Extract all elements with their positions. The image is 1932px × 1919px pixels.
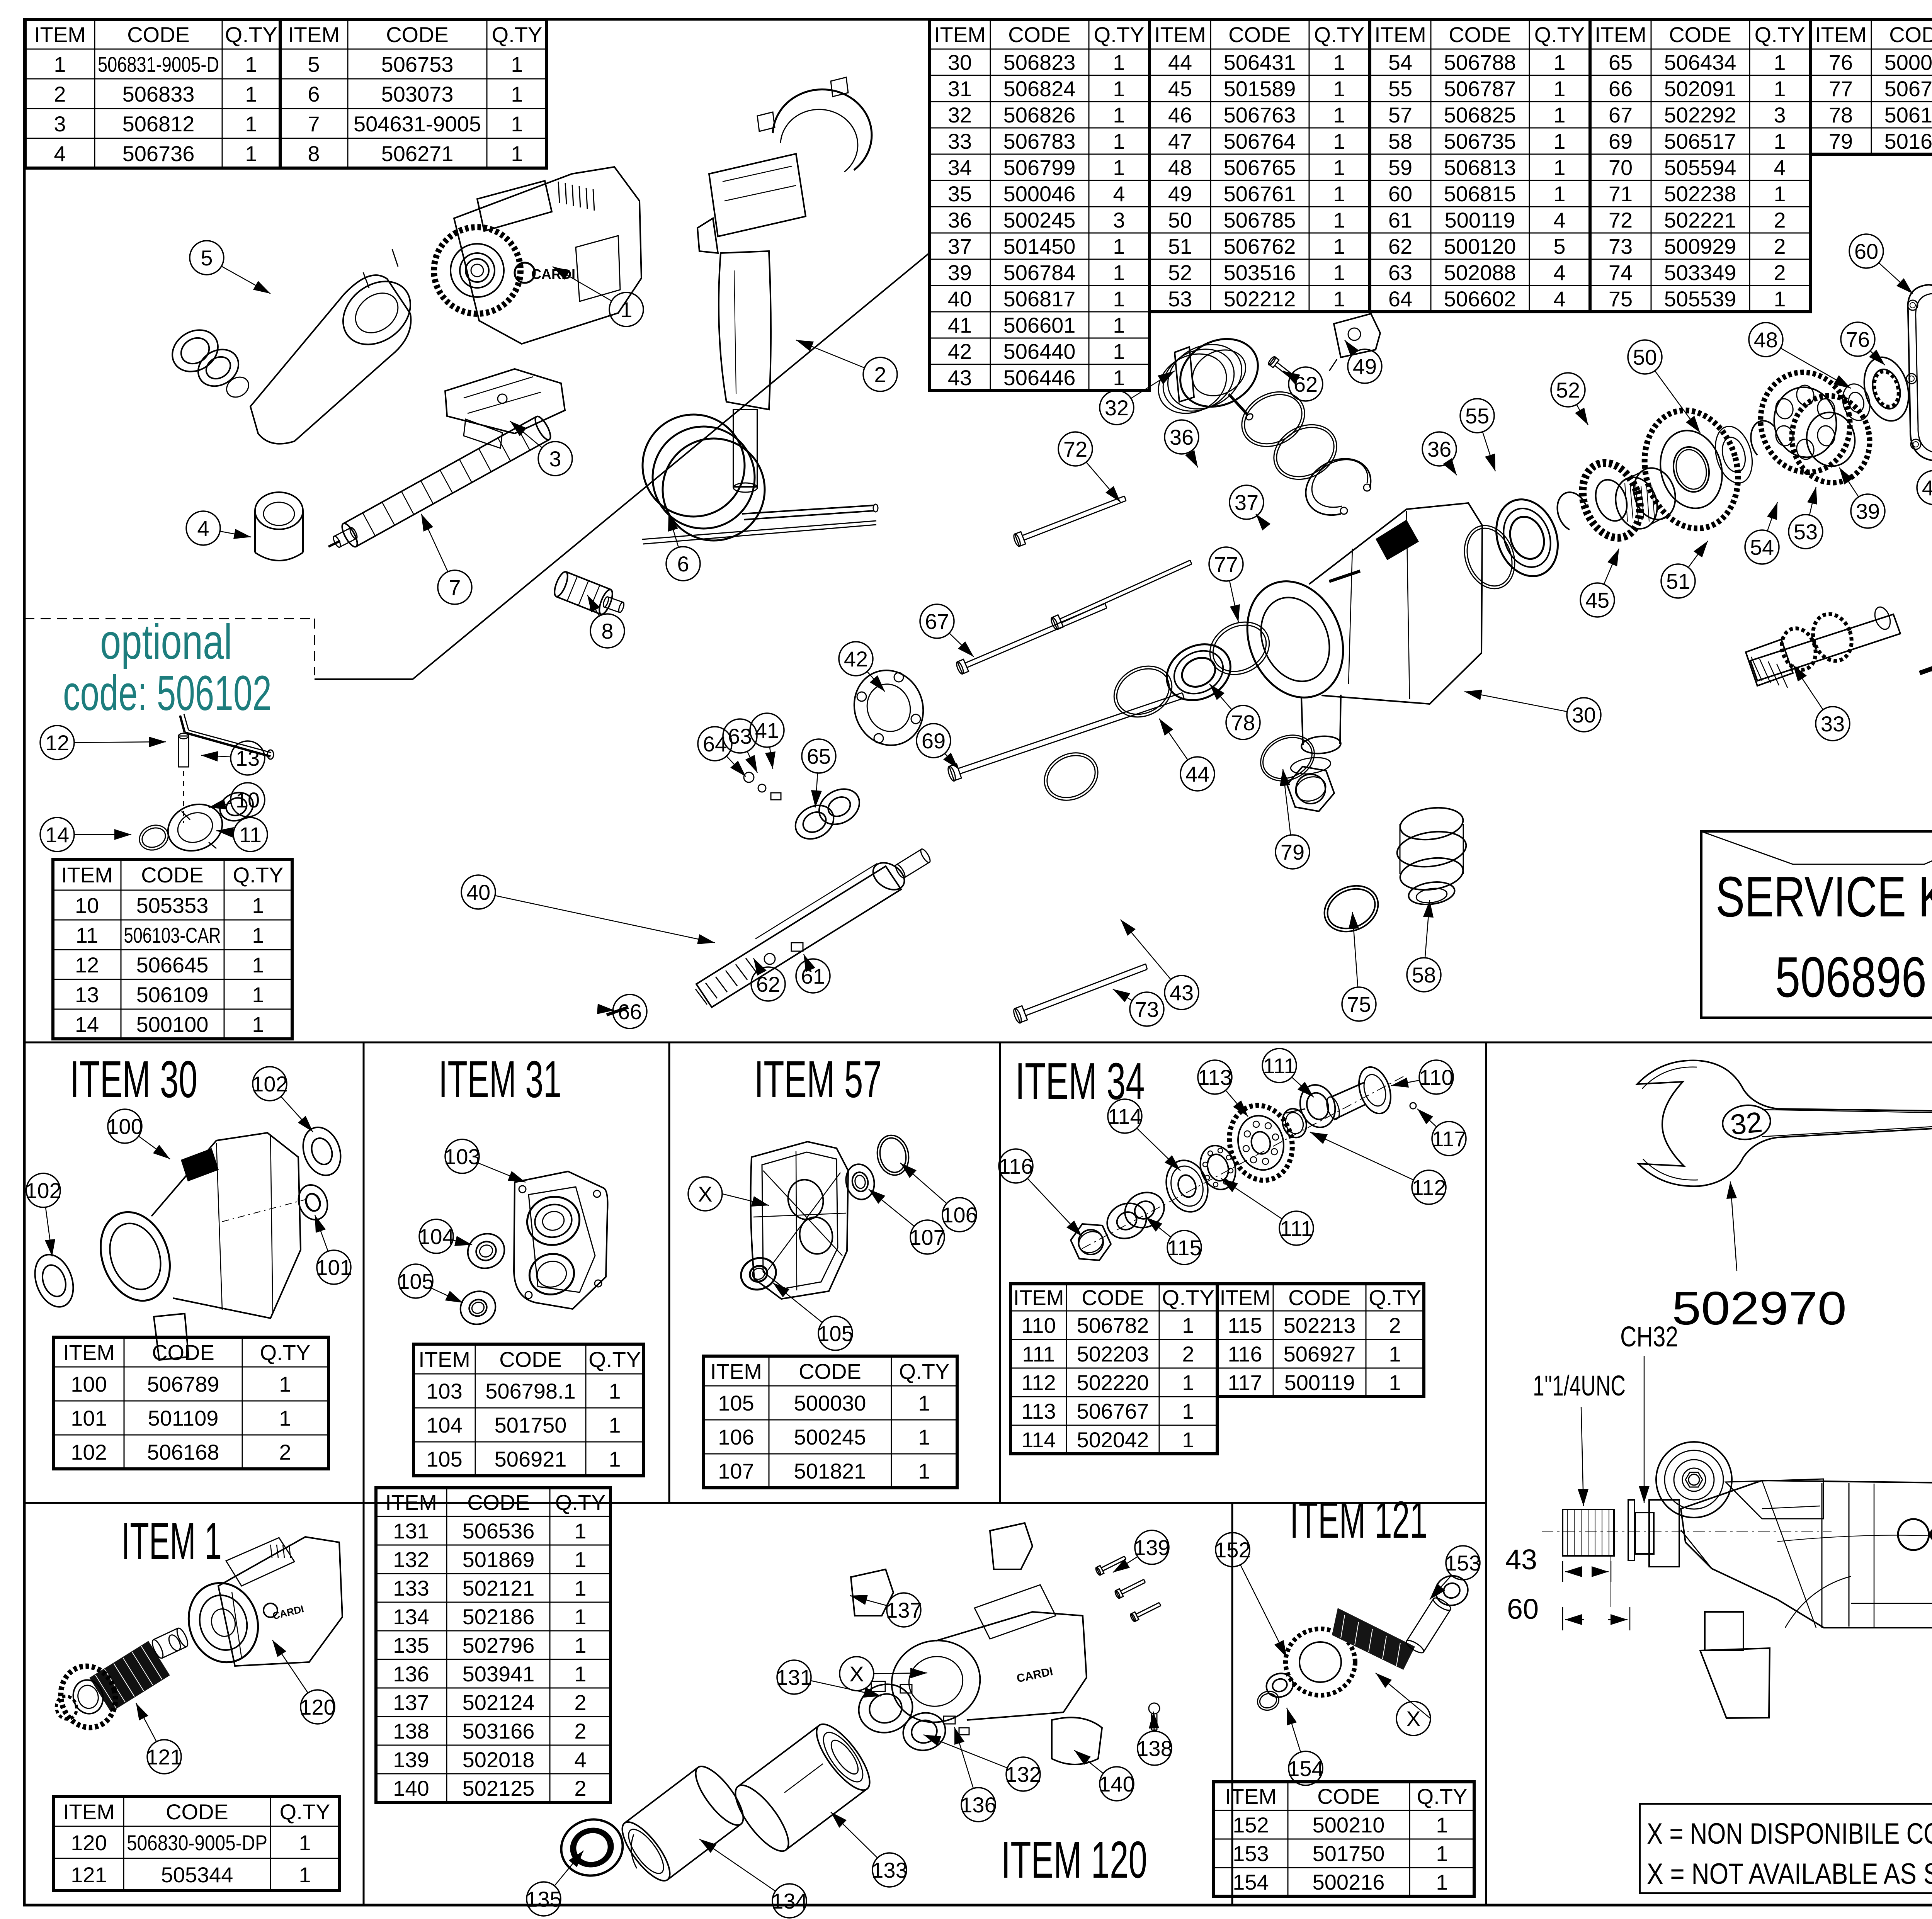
svg-text:CODE: CODE (1228, 22, 1291, 47)
svg-text:502125: 502125 (463, 1776, 535, 1800)
svg-text:2: 2 (574, 1776, 586, 1800)
svg-text:ITEM 1: ITEM 1 (121, 1512, 222, 1570)
svg-text:43: 43 (1170, 981, 1194, 1005)
svg-text:optional: optional (100, 614, 232, 670)
svg-text:116: 116 (1228, 1342, 1262, 1366)
svg-text:11: 11 (76, 923, 98, 947)
svg-text:34: 34 (948, 155, 972, 180)
svg-text:506764: 506764 (1224, 129, 1296, 153)
svg-text:1: 1 (1774, 287, 1786, 311)
svg-text:506736: 506736 (122, 141, 195, 166)
svg-text:1: 1 (1389, 1370, 1401, 1395)
svg-text:1: 1 (1113, 313, 1125, 337)
svg-text:62: 62 (756, 972, 780, 996)
svg-text:CODE: CODE (499, 1347, 562, 1372)
svg-text:1: 1 (1113, 103, 1125, 127)
svg-text:1: 1 (1333, 103, 1345, 127)
svg-text:102: 102 (252, 1072, 287, 1096)
svg-text:10: 10 (75, 893, 99, 918)
svg-text:41: 41 (948, 313, 972, 337)
svg-text:73: 73 (1135, 997, 1159, 1022)
svg-text:1: 1 (1333, 182, 1345, 206)
svg-text:133: 133 (871, 1858, 907, 1882)
svg-text:40: 40 (466, 880, 490, 904)
svg-text:65: 65 (1609, 50, 1633, 75)
svg-text:500100: 500100 (136, 1012, 209, 1037)
svg-text:1: 1 (54, 52, 66, 76)
svg-text:506103-CAR: 506103-CAR (124, 923, 221, 947)
svg-text:69: 69 (1609, 129, 1633, 153)
svg-text:13: 13 (75, 982, 99, 1007)
svg-text:CODE: CODE (1288, 1285, 1351, 1310)
svg-text:1: 1 (574, 1633, 586, 1657)
svg-text:1: 1 (1333, 50, 1345, 75)
svg-text:154: 154 (1287, 1756, 1323, 1781)
svg-text:506782: 506782 (1077, 1313, 1149, 1338)
svg-text:4: 4 (54, 141, 66, 166)
svg-text:43: 43 (1505, 1543, 1537, 1576)
svg-text:1: 1 (1113, 287, 1125, 311)
svg-text:2: 2 (279, 1440, 291, 1464)
svg-text:114: 114 (1021, 1428, 1056, 1452)
svg-text:CODE: CODE (141, 863, 204, 887)
svg-text:501750: 501750 (1313, 1841, 1385, 1866)
svg-text:131: 131 (776, 1665, 812, 1690)
svg-text:502796: 502796 (463, 1633, 535, 1657)
svg-text:503073: 503073 (381, 82, 454, 106)
svg-text:1: 1 (252, 923, 264, 947)
svg-text:500245: 500245 (794, 1425, 866, 1449)
svg-text:502088: 502088 (1444, 260, 1516, 285)
svg-text:121: 121 (71, 1863, 107, 1887)
svg-text:506896: 506896 (1775, 945, 1927, 1009)
svg-text:33: 33 (1821, 712, 1845, 736)
svg-text:58: 58 (1388, 129, 1412, 153)
svg-text:506788: 506788 (1444, 50, 1516, 75)
svg-text:1: 1 (1436, 1813, 1448, 1837)
svg-text:101: 101 (316, 1255, 352, 1280)
svg-text:76: 76 (1846, 327, 1870, 352)
svg-text:117: 117 (1228, 1370, 1262, 1395)
svg-text:CODE: CODE (1889, 22, 1932, 47)
svg-text:36: 36 (948, 208, 972, 232)
svg-text:37: 37 (1235, 490, 1259, 515)
svg-text:500046: 500046 (1003, 182, 1076, 206)
svg-text:104: 104 (426, 1413, 462, 1437)
svg-text:60: 60 (1507, 1593, 1539, 1625)
svg-text:60: 60 (1854, 239, 1878, 263)
svg-text:506536: 506536 (463, 1519, 535, 1543)
svg-text:X = NON DISPONIBILE COME RICAM: X = NON DISPONIBILE COME RICAMBIO (1647, 1817, 1932, 1850)
svg-text:ITEM: ITEM (63, 1340, 115, 1365)
svg-text:106: 106 (941, 1203, 977, 1227)
svg-text:1: 1 (1774, 129, 1786, 153)
svg-text:120: 120 (71, 1831, 107, 1855)
svg-text:ITEM 31: ITEM 31 (439, 1050, 561, 1108)
svg-text:506927: 506927 (1284, 1342, 1356, 1366)
svg-text:ITEM: ITEM (61, 863, 113, 887)
svg-text:76: 76 (1829, 50, 1853, 75)
svg-text:10: 10 (236, 788, 260, 812)
svg-text:100: 100 (107, 1114, 143, 1139)
svg-text:ITEM: ITEM (288, 22, 340, 47)
svg-text:52: 52 (1168, 260, 1192, 285)
svg-text:112: 112 (1021, 1370, 1056, 1395)
svg-text:500245: 500245 (1003, 208, 1076, 232)
svg-text:1: 1 (1113, 339, 1125, 364)
svg-text:500119: 500119 (1445, 208, 1515, 232)
svg-text:103: 103 (444, 1144, 480, 1169)
svg-text:ITEM: ITEM (934, 22, 986, 47)
svg-text:ITEM 30: ITEM 30 (70, 1050, 197, 1108)
svg-text:ITEM: ITEM (385, 1490, 437, 1514)
svg-text:103: 103 (426, 1379, 462, 1403)
svg-text:113: 113 (1197, 1065, 1232, 1090)
svg-text:506601: 506601 (1003, 313, 1076, 337)
svg-text:500120: 500120 (1444, 234, 1516, 258)
svg-text:1: 1 (1553, 50, 1565, 75)
svg-text:ITEM: ITEM (1595, 22, 1646, 47)
svg-text:ITEM: ITEM (1014, 1285, 1064, 1310)
svg-text:6: 6 (308, 82, 320, 106)
svg-text:78: 78 (1829, 103, 1853, 127)
svg-text:506645: 506645 (136, 953, 209, 977)
svg-text:5: 5 (201, 246, 213, 270)
svg-text:1: 1 (1333, 208, 1345, 232)
svg-text:506815: 506815 (1444, 182, 1516, 206)
svg-text:75: 75 (1609, 287, 1633, 311)
svg-text:50: 50 (1633, 345, 1657, 369)
svg-text:X: X (849, 1662, 864, 1686)
svg-text:1: 1 (245, 141, 257, 166)
svg-text:1: 1 (1774, 182, 1786, 206)
svg-text:506767: 506767 (1077, 1399, 1149, 1423)
svg-text:112: 112 (1412, 1175, 1446, 1200)
svg-text:30: 30 (1572, 703, 1596, 727)
svg-text:506813: 506813 (1444, 155, 1516, 180)
svg-text:1: 1 (1113, 365, 1125, 390)
svg-text:1: 1 (1389, 1342, 1401, 1366)
svg-text:1: 1 (574, 1662, 586, 1686)
svg-text:1: 1 (511, 112, 523, 136)
svg-text:502238: 502238 (1664, 182, 1736, 206)
svg-text:134: 134 (771, 1889, 807, 1913)
svg-text:1: 1 (1553, 155, 1565, 180)
svg-text:500119: 500119 (1284, 1370, 1355, 1395)
svg-text:1: 1 (918, 1391, 930, 1415)
svg-text:54: 54 (1750, 535, 1774, 559)
svg-text:506168: 506168 (147, 1440, 219, 1464)
svg-text:5: 5 (1553, 234, 1565, 258)
svg-text:1: 1 (299, 1863, 311, 1887)
svg-text:1: 1 (1113, 76, 1125, 101)
svg-text:X: X (698, 1182, 712, 1206)
svg-text:105: 105 (817, 1321, 853, 1346)
svg-text:136: 136 (960, 1793, 996, 1817)
svg-text:102: 102 (71, 1440, 107, 1464)
svg-text:43: 43 (948, 365, 972, 390)
svg-text:CODE: CODE (127, 22, 190, 47)
svg-text:506752: 506752 (1884, 76, 1932, 101)
svg-text:502018: 502018 (463, 1747, 535, 1772)
svg-text:59: 59 (1388, 155, 1412, 180)
svg-text:2: 2 (574, 1690, 586, 1715)
svg-text:506787: 506787 (1444, 76, 1516, 101)
svg-text:32: 32 (1105, 396, 1129, 420)
svg-text:4: 4 (1113, 182, 1125, 206)
svg-text:ITEM: ITEM (1220, 1285, 1270, 1310)
svg-text:506763: 506763 (1224, 103, 1296, 127)
svg-text:1: 1 (245, 112, 257, 136)
svg-text:111: 111 (1022, 1342, 1055, 1366)
svg-text:115: 115 (1167, 1236, 1201, 1260)
svg-text:2: 2 (1774, 208, 1786, 232)
svg-text:ITEM 120: ITEM 120 (1001, 1831, 1147, 1889)
svg-text:4: 4 (1774, 155, 1786, 180)
svg-text:71: 71 (1609, 182, 1633, 206)
svg-text:8: 8 (308, 141, 320, 166)
svg-text:1: 1 (918, 1425, 930, 1449)
svg-text:501609: 501609 (1884, 129, 1932, 153)
svg-text:1: 1 (1113, 155, 1125, 180)
svg-text:37: 37 (948, 234, 972, 258)
svg-text:66: 66 (618, 999, 642, 1024)
svg-text:67: 67 (925, 609, 949, 634)
svg-text:506799: 506799 (1003, 155, 1076, 180)
svg-text:ITEM: ITEM (1154, 22, 1206, 47)
svg-text:506921: 506921 (495, 1447, 567, 1471)
svg-text:502042: 502042 (1077, 1428, 1149, 1452)
svg-text:70: 70 (1609, 155, 1633, 180)
svg-text:Q.TY: Q.TY (1314, 22, 1365, 47)
svg-text:1: 1 (918, 1459, 930, 1483)
svg-text:503941: 503941 (463, 1662, 535, 1686)
svg-text:506440: 506440 (1003, 339, 1076, 364)
svg-text:506762: 506762 (1224, 234, 1296, 258)
svg-text:52: 52 (1556, 378, 1580, 402)
svg-text:1: 1 (574, 1605, 586, 1629)
svg-text:64: 64 (1388, 287, 1412, 311)
svg-text:X: X (1406, 1707, 1420, 1731)
svg-text:117: 117 (1432, 1127, 1466, 1151)
svg-text:50: 50 (1168, 208, 1192, 232)
svg-text:111: 111 (1280, 1216, 1313, 1241)
svg-text:49: 49 (1353, 354, 1377, 379)
svg-text:ITEM: ITEM (1374, 22, 1426, 47)
svg-text:1: 1 (1553, 182, 1565, 206)
svg-text:1: 1 (1774, 50, 1786, 75)
svg-text:47: 47 (1922, 476, 1932, 500)
svg-text:153: 153 (1233, 1841, 1269, 1866)
svg-text:63: 63 (1388, 260, 1412, 285)
svg-text:502970: 502970 (1672, 1282, 1847, 1334)
svg-text:506166: 506166 (1884, 103, 1932, 127)
svg-text:1: 1 (1333, 260, 1345, 285)
svg-text:503166: 503166 (463, 1719, 535, 1743)
svg-text:79: 79 (1829, 129, 1853, 153)
svg-text:501109: 501109 (148, 1406, 219, 1430)
svg-text:500929: 500929 (1664, 234, 1736, 258)
svg-text:74: 74 (1609, 260, 1633, 285)
svg-text:Q.TY: Q.TY (588, 1347, 641, 1372)
svg-text:61: 61 (801, 964, 825, 988)
svg-text:506753: 506753 (381, 52, 454, 76)
svg-text:ITEM: ITEM (34, 22, 86, 47)
svg-text:1: 1 (279, 1372, 291, 1396)
svg-text:4: 4 (197, 516, 209, 541)
svg-text:4: 4 (1553, 260, 1565, 285)
svg-text:1: 1 (1553, 129, 1565, 153)
svg-text:152: 152 (1214, 1538, 1250, 1562)
svg-text:49: 49 (1168, 182, 1192, 206)
svg-text:104: 104 (418, 1224, 454, 1249)
svg-text:65: 65 (807, 744, 831, 768)
svg-text:1: 1 (574, 1519, 586, 1543)
svg-text:54: 54 (1388, 50, 1412, 75)
svg-text:502212: 502212 (1224, 287, 1296, 311)
svg-text:1: 1 (609, 1379, 621, 1403)
svg-text:506431: 506431 (1224, 50, 1296, 75)
svg-text:66: 66 (1609, 76, 1633, 101)
svg-text:14: 14 (75, 1012, 99, 1037)
svg-text:506826: 506826 (1003, 103, 1076, 127)
svg-text:133: 133 (393, 1576, 429, 1600)
svg-text:505344: 505344 (161, 1863, 233, 1887)
svg-text:4: 4 (574, 1747, 586, 1772)
svg-text:502203: 502203 (1077, 1342, 1149, 1366)
svg-text:1: 1 (511, 141, 523, 166)
svg-text:62: 62 (1294, 372, 1318, 396)
svg-text:1: 1 (1553, 76, 1565, 101)
svg-text:1: 1 (1333, 287, 1345, 311)
svg-text:503349: 503349 (1664, 260, 1736, 285)
svg-text:502091: 502091 (1664, 76, 1736, 101)
svg-text:61: 61 (1388, 208, 1412, 232)
svg-text:44: 44 (1185, 762, 1209, 786)
svg-text:500098: 500098 (1884, 50, 1932, 75)
svg-text:42: 42 (948, 339, 972, 364)
svg-text:CODE: CODE (166, 1800, 228, 1824)
svg-text:1: 1 (609, 1447, 621, 1471)
svg-text:1: 1 (1333, 76, 1345, 101)
svg-text:501450: 501450 (1003, 234, 1076, 258)
svg-text:506271: 506271 (381, 141, 454, 166)
svg-text:Q.TY: Q.TY (1534, 22, 1585, 47)
svg-text:62: 62 (1388, 234, 1412, 258)
svg-text:39: 39 (1856, 499, 1880, 524)
svg-text:502292: 502292 (1664, 103, 1736, 127)
svg-text:152: 152 (1233, 1813, 1269, 1837)
svg-text:139: 139 (1134, 1535, 1170, 1560)
svg-text:ITEM 34: ITEM 34 (1015, 1052, 1145, 1110)
svg-text:Q.TY: Q.TY (1094, 22, 1145, 47)
svg-text:140: 140 (393, 1776, 429, 1800)
svg-text:1: 1 (574, 1576, 586, 1600)
svg-text:ITEM: ITEM (418, 1347, 470, 1372)
svg-text:1: 1 (1436, 1870, 1448, 1894)
svg-text:135: 135 (393, 1633, 429, 1657)
svg-text:135: 135 (526, 1887, 561, 1911)
svg-text:1: 1 (1113, 129, 1125, 153)
svg-text:1: 1 (299, 1831, 311, 1855)
svg-text:ITEM: ITEM (710, 1359, 762, 1384)
svg-text:32: 32 (1729, 1106, 1764, 1141)
svg-text:506735: 506735 (1444, 129, 1516, 153)
svg-text:502213: 502213 (1284, 1313, 1356, 1338)
svg-text:60: 60 (1388, 182, 1412, 206)
svg-text:506446: 506446 (1003, 365, 1076, 390)
svg-text:506833: 506833 (122, 82, 195, 106)
svg-text:1: 1 (1333, 155, 1345, 180)
svg-text:121: 121 (146, 1745, 182, 1769)
svg-text:58: 58 (1412, 963, 1436, 987)
svg-text:1: 1 (1333, 129, 1345, 153)
svg-text:CODE: CODE (1449, 22, 1511, 47)
svg-text:506798.1: 506798.1 (485, 1379, 576, 1403)
svg-text:101: 101 (71, 1406, 107, 1430)
svg-text:Q.TY: Q.TY (233, 863, 284, 887)
svg-text:2: 2 (1774, 260, 1786, 285)
svg-text:42: 42 (844, 647, 868, 671)
svg-text:1: 1 (1113, 50, 1125, 75)
svg-text:502221: 502221 (1664, 208, 1736, 232)
svg-text:500216: 500216 (1313, 1870, 1385, 1894)
svg-text:CARDI: CARDI (1929, 1525, 1932, 1545)
svg-text:ITEM 57: ITEM 57 (754, 1050, 882, 1108)
svg-text:506783: 506783 (1003, 129, 1076, 153)
svg-text:14: 14 (45, 823, 69, 847)
svg-text:ITEM: ITEM (1225, 1784, 1277, 1809)
svg-text:78: 78 (1231, 710, 1255, 735)
svg-text:75: 75 (1347, 992, 1371, 1016)
svg-text:506830-9005-DP: 506830-9005-DP (127, 1831, 267, 1855)
svg-text:46: 46 (1168, 103, 1192, 127)
svg-text:CODE: CODE (1317, 1784, 1380, 1809)
svg-text:1: 1 (1774, 76, 1786, 101)
svg-text:CODE: CODE (467, 1490, 530, 1514)
svg-text:506825: 506825 (1444, 103, 1516, 127)
svg-text:53: 53 (1168, 287, 1192, 311)
svg-text:500210: 500210 (1313, 1813, 1385, 1837)
svg-text:72: 72 (1063, 437, 1087, 461)
svg-text:105: 105 (426, 1447, 462, 1471)
svg-text:110: 110 (1021, 1313, 1056, 1338)
svg-text:Q.TY: Q.TY (899, 1359, 950, 1384)
svg-text:ITEM: ITEM (63, 1800, 115, 1824)
svg-text:506831-9005-D: 506831-9005-D (98, 52, 219, 76)
svg-text:506761: 506761 (1224, 182, 1296, 206)
svg-text:2: 2 (874, 362, 886, 387)
svg-text:CARDI: CARDI (531, 266, 575, 282)
svg-text:506812: 506812 (122, 112, 195, 136)
svg-text:Q.TY: Q.TY (1755, 22, 1805, 47)
svg-text:506602: 506602 (1444, 287, 1516, 311)
svg-text:48: 48 (1754, 328, 1778, 352)
svg-text:131: 131 (393, 1519, 429, 1543)
svg-text:31: 31 (948, 76, 972, 101)
svg-text:506109: 506109 (136, 982, 209, 1007)
svg-text:2: 2 (54, 82, 66, 106)
svg-text:ITEM 121: ITEM 121 (1290, 1491, 1427, 1549)
svg-text:154: 154 (1233, 1870, 1269, 1894)
svg-text:136: 136 (393, 1662, 429, 1686)
svg-text:45: 45 (1585, 588, 1609, 612)
svg-text:Q.TY: Q.TY (1162, 1285, 1214, 1310)
svg-text:CODE: CODE (152, 1340, 214, 1365)
svg-text:CH32: CH32 (1620, 1321, 1678, 1353)
svg-text:41: 41 (755, 718, 779, 743)
svg-text:7: 7 (449, 575, 461, 600)
